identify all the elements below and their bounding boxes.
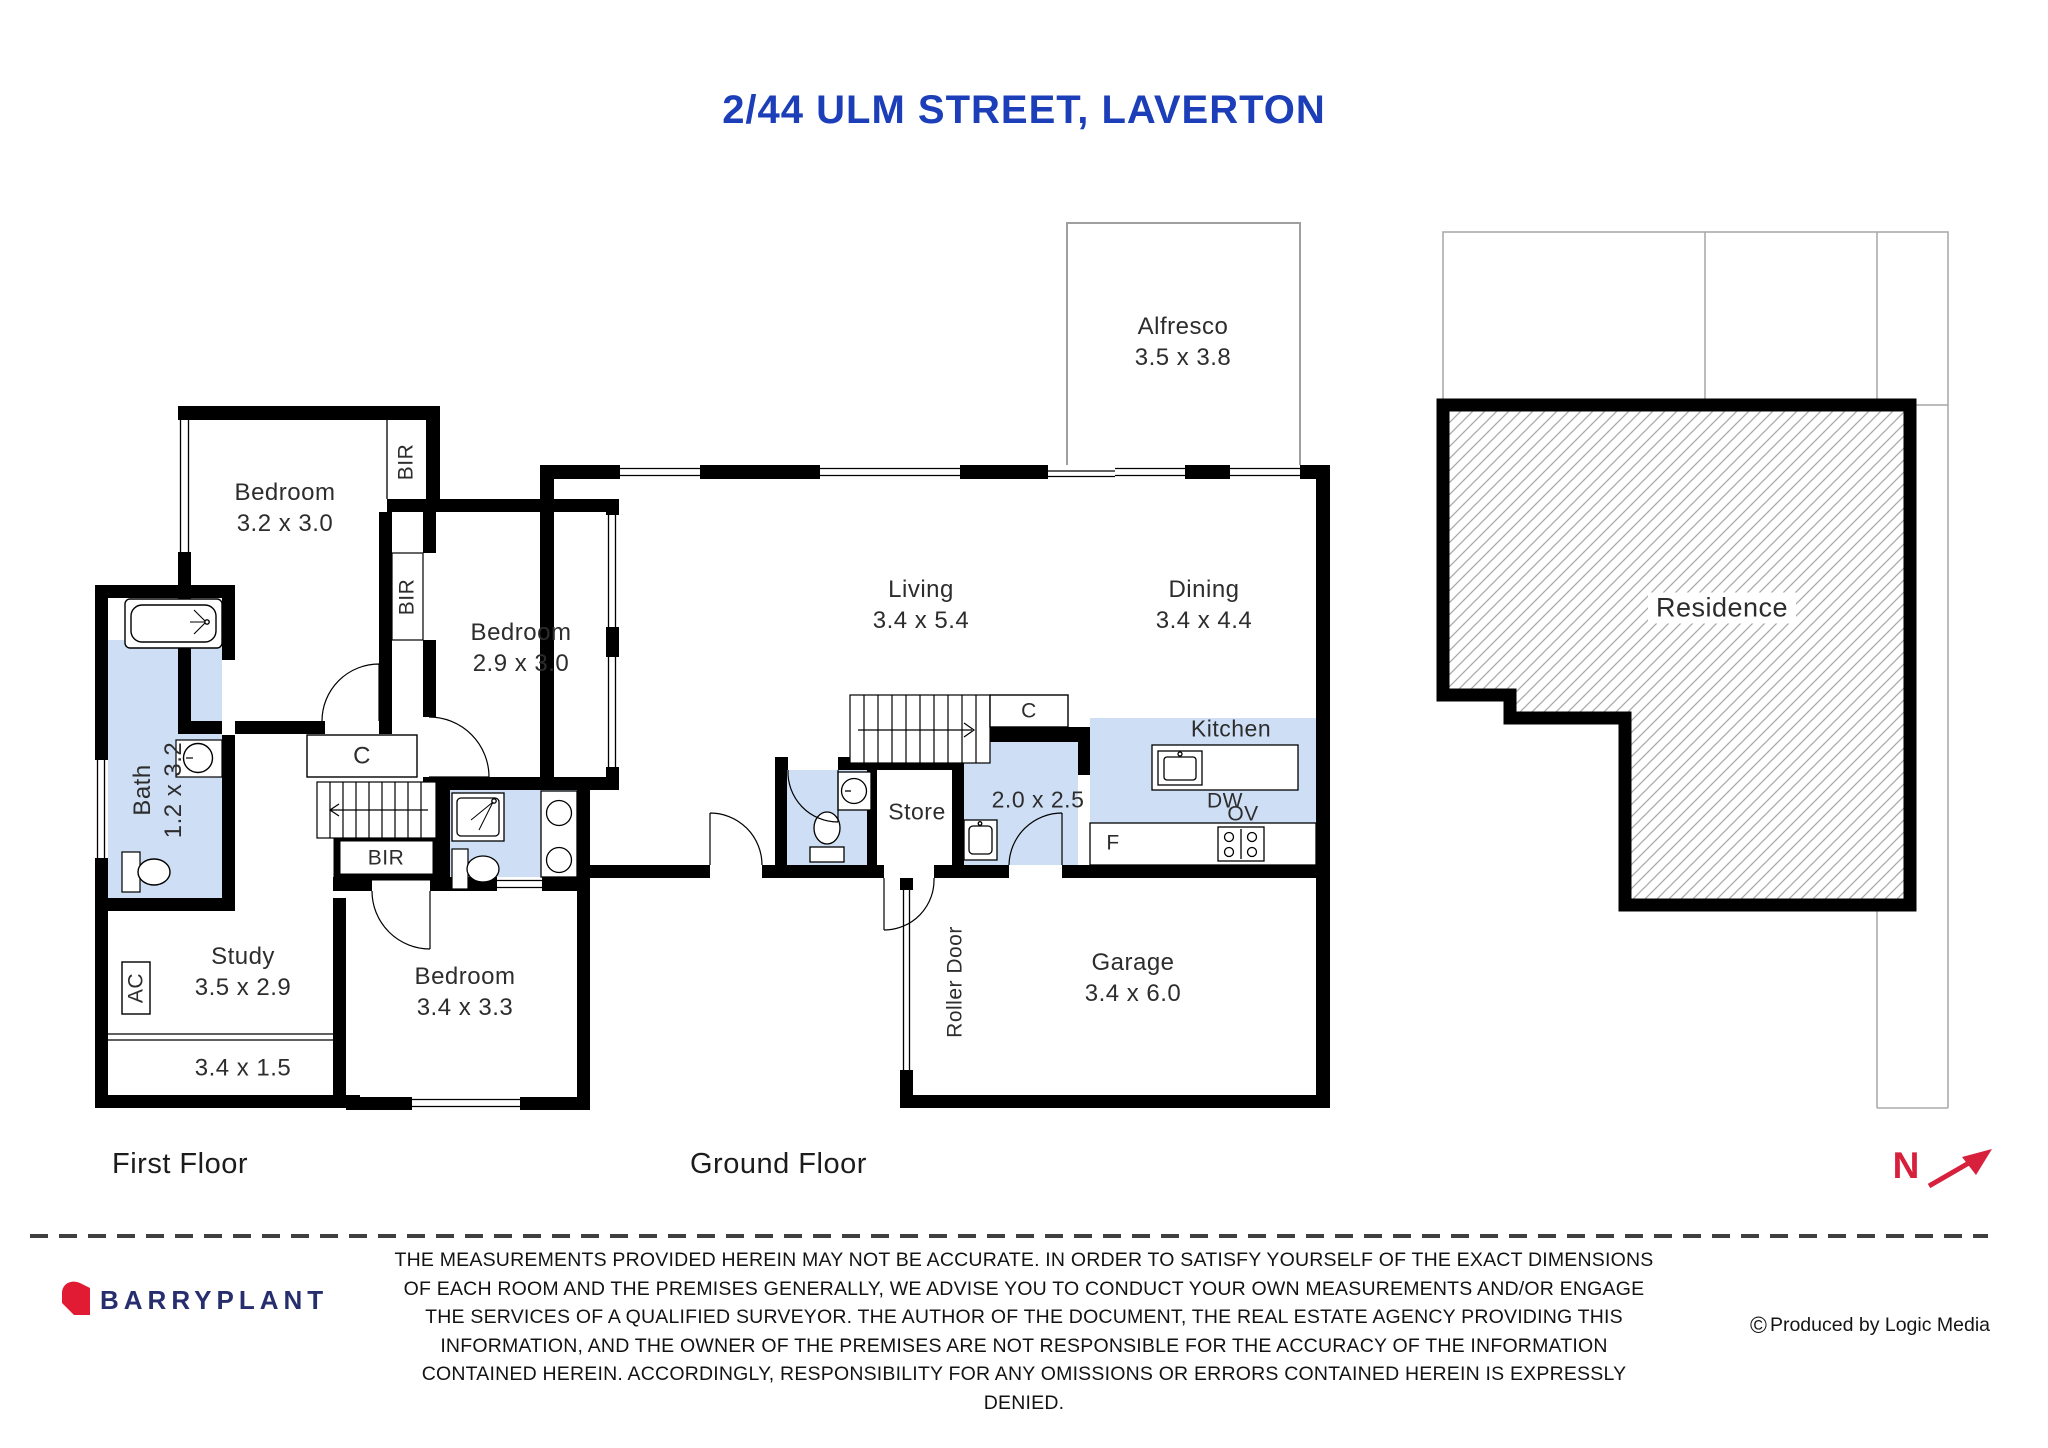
barry-plant-logo-text: BARRYPLANT xyxy=(100,1285,328,1316)
label-air-conditioner: AC xyxy=(121,973,152,1003)
room-label-alfresco: Alfresco3.5 x 3.8 xyxy=(1135,311,1232,373)
first-floor-caption: First Floor xyxy=(112,1148,248,1181)
room-label-landing-dims: 3.4 x 1.5 xyxy=(195,1053,292,1084)
label-residence: Residence xyxy=(1648,593,1796,624)
room-label-dining: Dining3.4 x 4.4 xyxy=(1156,574,1253,636)
disclaimer-text: THE MEASUREMENTS PROVIDED HEREIN MAY NOT… xyxy=(354,1246,1694,1417)
copyright-icon: © xyxy=(1750,1312,1767,1338)
producer-credit: ©Produced by Logic Media xyxy=(1750,1312,1990,1339)
north-arrow-icon xyxy=(1929,1149,1992,1186)
room-label-garage: Garage3.4 x 6.0 xyxy=(1085,947,1182,1009)
room-label-bedroom2: Bedroom2.9 x 3.0 xyxy=(471,617,572,679)
ground-floor-caption: Ground Floor xyxy=(690,1148,867,1181)
room-label-laundry-dims: 2.0 x 2.5 xyxy=(992,785,1085,816)
room-label-bedroom3: Bedroom3.4 x 3.3 xyxy=(415,961,516,1023)
label-fridge: F xyxy=(1106,828,1119,859)
room-label-bath: Bath1.2 x 3.2 xyxy=(127,742,189,839)
room-label-living: Living3.4 x 5.4 xyxy=(873,574,970,636)
room-label-bedroom1: Bedroom3.2 x 3.0 xyxy=(235,477,336,539)
page-title: 2/44 ULM STREET, LAVERTON xyxy=(0,88,2048,133)
room-label-kitchen: Kitchen xyxy=(1191,714,1271,745)
stairs-first xyxy=(317,782,436,838)
room-label-store: Store xyxy=(888,797,945,828)
label-closet-ground: C xyxy=(1021,696,1037,727)
label-bir-bedroom2: BIR xyxy=(392,579,423,616)
label-bir-bedroom1: BIR xyxy=(391,444,422,481)
label-closet-first: C xyxy=(353,741,371,772)
label-roller-door: Roller Door xyxy=(940,926,971,1038)
barry-plant-logo-icon xyxy=(62,1282,90,1315)
label-oven: OV xyxy=(1227,799,1258,830)
label-bir-bedroom3: BIR xyxy=(368,843,405,874)
residence-footprint xyxy=(1443,405,1910,905)
floorplan-page: 2/44 ULM STREET, LAVERTON Bedroom3.2 x 3… xyxy=(0,0,2048,1448)
stairs-ground xyxy=(850,695,990,763)
room-label-study: Study3.5 x 2.9 xyxy=(195,941,292,1003)
north-label: N xyxy=(1893,1145,1920,1187)
